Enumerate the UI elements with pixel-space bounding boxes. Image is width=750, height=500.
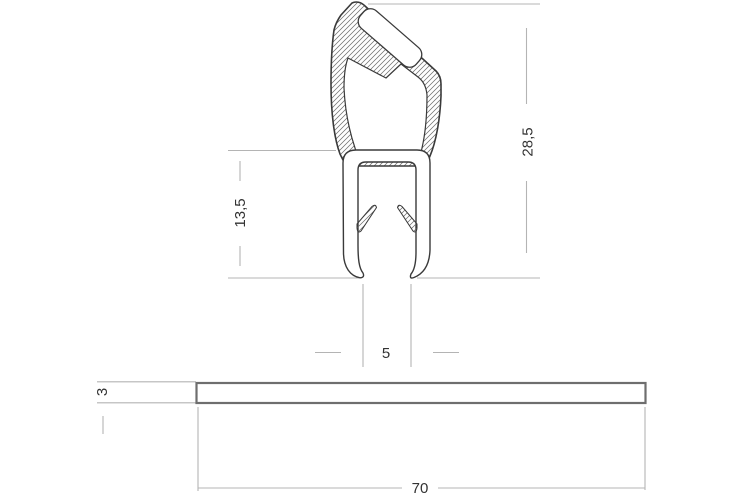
seal-profile (331, 2, 441, 278)
dim-panel-thickness-label: 3 (94, 388, 111, 396)
dim-channel-gap-label: 5 (382, 345, 390, 362)
seal-profile-drawing: 28,5 13,5 5 3 70 (0, 0, 750, 500)
profile-right-finger (398, 205, 418, 232)
dim-clamp-height-label: 13,5 (232, 198, 249, 227)
dim-panel-thickness-lines (97, 382, 196, 434)
profile-u-channel (343, 150, 430, 278)
dim-panel-width-label: 70 (412, 480, 429, 497)
technical-drawing-canvas: 28,5 13,5 5 3 70 (0, 0, 750, 500)
dim-total-height-label: 28,5 (519, 127, 536, 156)
dim-panel-width-lines (198, 407, 645, 491)
glass-panel (197, 383, 646, 403)
profile-left-finger (357, 205, 377, 232)
